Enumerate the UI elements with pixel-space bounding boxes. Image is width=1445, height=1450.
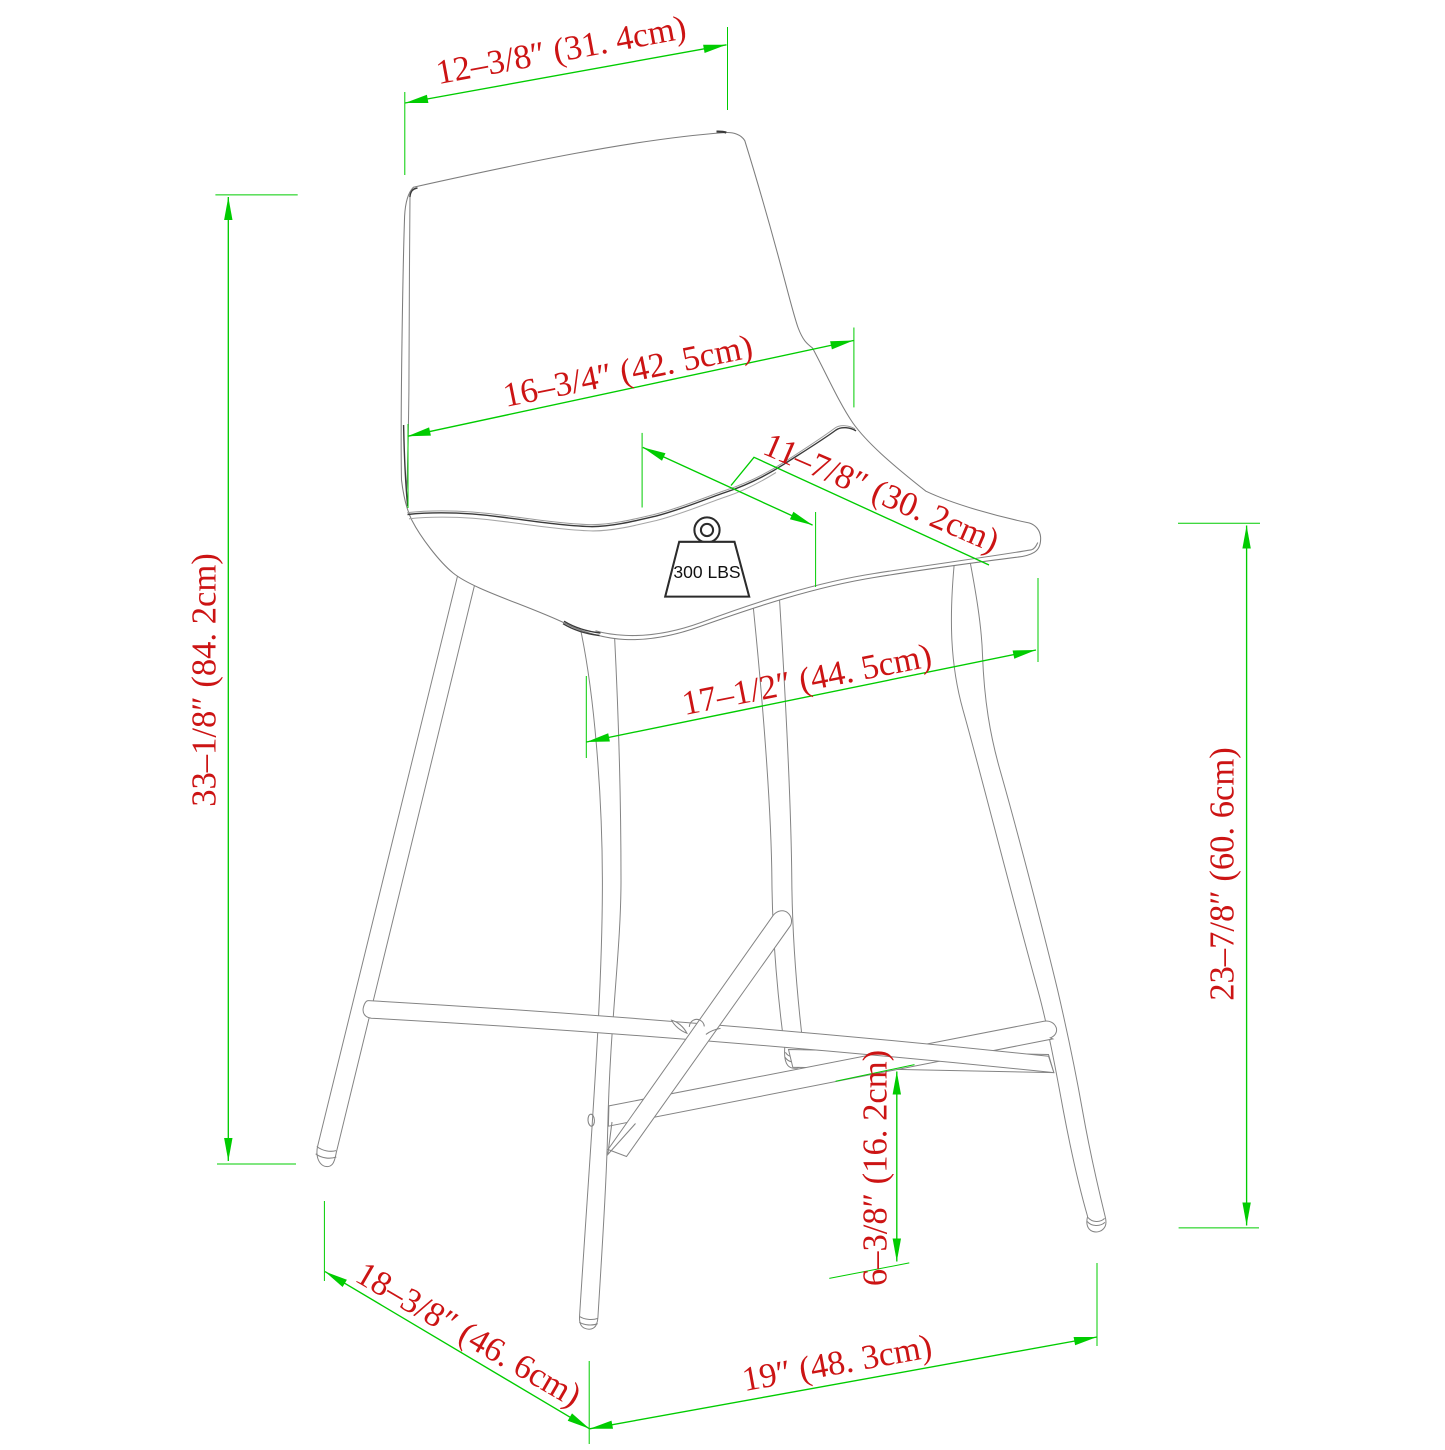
svg-text:23–7/8″ (60. 6cm): 23–7/8″ (60. 6cm) <box>1204 747 1242 1001</box>
svg-text:33–1/8″ (84. 2cm): 33–1/8″ (84. 2cm) <box>186 553 224 807</box>
svg-text:6–3/8″ (16. 2cm): 6–3/8″ (16. 2cm) <box>857 1050 895 1286</box>
svg-text:300 LBS: 300 LBS <box>673 562 740 582</box>
